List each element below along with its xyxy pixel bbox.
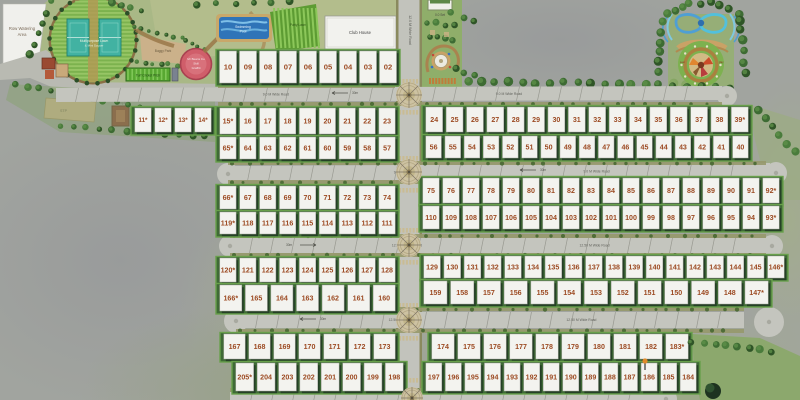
svg-text:Multipurpose Lawn: Multipurpose Lawn [80,39,109,43]
svg-text:128: 128 [381,267,393,275]
svg-text:201: 201 [324,374,336,382]
svg-text:167: 167 [229,343,241,351]
svg-text:0.0 Set: 0.0 Set [435,13,445,17]
svg-text:Graffiti: Graffiti [192,66,201,70]
svg-text:139: 139 [628,264,640,272]
svg-text:87: 87 [667,187,675,195]
svg-text:119*: 119* [221,220,235,228]
svg-text:170: 170 [304,343,316,351]
svg-text:180: 180 [593,343,605,351]
svg-text:70: 70 [304,194,312,202]
svg-text:164: 164 [276,295,288,303]
svg-text:204: 204 [260,374,272,382]
svg-text:149: 149 [697,289,709,297]
svg-text:191: 191 [545,374,557,382]
svg-text:174: 174 [437,343,449,351]
svg-text:75: 75 [427,187,435,195]
svg-text:30m: 30m [320,317,327,321]
svg-text:62: 62 [284,145,292,153]
svg-text:186: 186 [643,374,655,382]
svg-text:126: 126 [341,267,353,275]
svg-text:68: 68 [264,194,272,202]
svg-text:189: 189 [584,374,596,382]
svg-text:184: 184 [682,374,694,382]
svg-text:118: 118 [242,220,253,228]
svg-text:98: 98 [667,214,675,222]
svg-text:102: 102 [585,214,597,222]
svg-text:30m: 30m [352,91,359,95]
svg-text:179: 179 [567,343,579,351]
svg-text:181: 181 [619,343,631,351]
svg-text:40: 40 [736,144,744,152]
svg-text:Pool: Pool [240,30,247,34]
svg-text:Mr Beans Co: Mr Beans Co [187,57,205,61]
svg-text:100: 100 [625,214,637,222]
svg-text:& Mini Soccer: & Mini Soccer [85,44,104,48]
svg-text:Swimming: Swimming [235,25,251,29]
svg-text:151: 151 [644,289,656,297]
svg-text:177: 177 [515,343,527,351]
svg-text:39*: 39* [734,116,745,124]
svg-text:101: 101 [605,214,617,222]
svg-text:97: 97 [687,214,695,222]
svg-text:28: 28 [512,116,520,124]
svg-text:113: 113 [342,220,353,228]
svg-text:120*: 120* [221,267,236,275]
svg-text:08: 08 [264,63,272,72]
svg-text:144: 144 [729,264,741,272]
svg-text:178: 178 [541,343,553,351]
svg-text:84: 84 [607,187,615,195]
svg-text:105: 105 [525,214,537,222]
svg-text:198: 198 [388,374,400,382]
svg-text:47: 47 [602,144,610,152]
svg-text:64: 64 [244,145,252,153]
svg-text:63: 63 [264,145,272,153]
svg-text:153: 153 [590,289,602,297]
svg-text:127: 127 [361,267,373,275]
svg-text:30m: 30m [540,168,547,172]
svg-text:141: 141 [669,264,681,272]
svg-text:129: 129 [426,264,438,272]
svg-text:165: 165 [250,295,262,303]
svg-text:107: 107 [485,214,497,222]
svg-text:203: 203 [281,374,293,382]
svg-text:53: 53 [487,144,495,152]
svg-text:156: 156 [510,289,522,297]
svg-text:07: 07 [284,63,292,72]
svg-text:58: 58 [363,145,371,153]
svg-text:27: 27 [491,116,499,124]
svg-text:136: 136 [568,264,580,272]
svg-text:60: 60 [323,145,331,153]
svg-text:205*: 205* [237,374,252,382]
svg-text:12.50 M Wide Road: 12.50 M Wide Road [566,318,596,322]
svg-text:Area: Area [18,32,28,37]
svg-text:146*: 146* [769,264,784,272]
svg-text:116: 116 [282,220,293,228]
svg-text:21: 21 [343,118,351,126]
svg-text:14*: 14* [198,117,208,124]
svg-text:Turf Cricket Pitch: Turf Cricket Pitch [136,74,161,78]
svg-text:140: 140 [649,264,661,272]
svg-text:175: 175 [463,343,475,351]
svg-text:78: 78 [487,187,495,195]
svg-text:23: 23 [383,118,391,126]
svg-text:04: 04 [344,63,353,72]
svg-text:18: 18 [284,118,292,126]
svg-text:82: 82 [567,187,575,195]
svg-text:194: 194 [487,374,499,382]
svg-text:162: 162 [327,295,339,303]
svg-text:114: 114 [322,220,333,228]
svg-text:44: 44 [660,144,668,152]
svg-text:06: 06 [304,63,312,72]
svg-text:Club House: Club House [349,30,372,35]
svg-text:89: 89 [707,187,715,195]
svg-text:Party Lawn: Party Lawn [290,23,306,27]
svg-text:73: 73 [363,194,371,202]
svg-text:202: 202 [303,374,315,382]
svg-text:161: 161 [353,295,365,303]
svg-text:176: 176 [489,343,501,351]
svg-text:131: 131 [467,264,479,272]
svg-text:152: 152 [617,289,629,297]
svg-text:115: 115 [302,220,313,228]
svg-text:168: 168 [254,343,266,351]
svg-text:46: 46 [621,144,629,152]
svg-text:169: 169 [279,343,291,351]
svg-text:76: 76 [447,187,455,195]
svg-text:05: 05 [324,63,333,72]
svg-text:111: 111 [382,220,393,228]
svg-text:34: 34 [634,116,642,124]
svg-text:112: 112 [361,220,372,228]
svg-text:77: 77 [467,187,475,195]
svg-text:Row Watering: Row Watering [9,26,36,31]
svg-text:187: 187 [624,374,636,382]
svg-text:188: 188 [604,374,616,382]
svg-text:86: 86 [647,187,655,195]
svg-text:88: 88 [687,187,695,195]
svg-text:72: 72 [343,194,351,202]
svg-text:15*: 15* [223,118,234,126]
svg-text:197: 197 [428,374,440,382]
svg-text:02: 02 [384,63,392,72]
svg-text:30m: 30m [286,243,293,247]
svg-text:79: 79 [507,187,515,195]
svg-text:57: 57 [383,145,391,153]
svg-text:143: 143 [709,264,721,272]
svg-text:195: 195 [467,374,479,382]
svg-text:121: 121 [242,267,254,275]
svg-text:Buggy Park: Buggy Park [155,49,172,53]
svg-text:157: 157 [483,289,495,297]
svg-text:166*: 166* [223,295,238,303]
svg-text:16: 16 [244,118,252,126]
svg-text:35: 35 [654,116,662,124]
svg-text:154: 154 [563,289,575,297]
svg-text:81: 81 [547,187,555,195]
svg-text:192: 192 [526,374,538,382]
svg-text:103: 103 [565,214,577,222]
svg-text:159: 159 [429,289,441,297]
svg-text:29: 29 [532,116,540,124]
svg-text:22: 22 [363,118,371,126]
svg-text:41: 41 [717,144,725,152]
svg-text:56: 56 [430,144,438,152]
svg-text:125: 125 [321,267,333,275]
svg-text:199: 199 [367,374,379,382]
svg-text:134: 134 [527,264,539,272]
svg-text:03: 03 [364,63,372,72]
svg-text:33: 33 [614,116,622,124]
svg-text:30: 30 [552,116,560,124]
svg-text:117: 117 [262,220,273,228]
svg-text:80: 80 [527,187,535,195]
svg-text:51: 51 [526,144,534,152]
svg-text:52: 52 [506,144,514,152]
svg-text:83: 83 [587,187,595,195]
svg-text:9.0 M Wide Road: 9.0 M Wide Road [496,92,522,96]
svg-text:158: 158 [456,289,468,297]
svg-text:42: 42 [698,144,706,152]
svg-text:9.0 M Wide Road: 9.0 M Wide Road [263,93,289,97]
svg-text:190: 190 [565,374,577,382]
svg-text:133: 133 [507,264,519,272]
svg-text:25: 25 [451,116,459,124]
svg-text:17: 17 [264,118,272,126]
svg-text:45: 45 [641,144,649,152]
svg-text:173: 173 [379,343,391,351]
svg-text:135: 135 [547,264,559,272]
svg-text:123: 123 [282,267,294,275]
svg-text:12*: 12* [158,117,168,124]
svg-text:110: 110 [425,214,436,222]
svg-text:37: 37 [695,116,703,124]
svg-text:138: 138 [608,264,620,272]
svg-text:38: 38 [715,116,723,124]
svg-text:96: 96 [707,214,715,222]
svg-text:13*: 13* [178,117,188,124]
svg-text:85: 85 [627,187,635,195]
svg-text:147*: 147* [749,289,764,297]
svg-text:196: 196 [447,374,459,382]
svg-text:seat: seat [680,61,685,64]
svg-text:193: 193 [506,374,518,382]
svg-text:11*: 11* [139,117,149,124]
svg-text:Skill: Skill [193,62,199,66]
svg-text:12.0 M Wide Road: 12.0 M Wide Road [408,15,412,45]
svg-text:12.50 M Wide Road: 12.50 M Wide Road [580,244,610,248]
svg-text:163: 163 [302,295,314,303]
svg-text:59: 59 [343,145,351,153]
svg-text:91: 91 [747,187,755,195]
svg-text:24: 24 [430,116,438,124]
svg-text:95: 95 [727,214,735,222]
svg-text:124: 124 [302,267,314,275]
svg-text:09: 09 [244,63,252,72]
svg-text:182: 182 [645,343,657,351]
svg-text:99: 99 [647,214,655,222]
svg-text:185: 185 [663,374,675,382]
svg-text:50: 50 [545,144,553,152]
svg-text:54: 54 [468,144,476,152]
svg-text:66*: 66* [223,194,234,202]
svg-text:36: 36 [675,116,683,124]
svg-text:9.0 M Wide Road: 9.0 M Wide Road [583,170,609,174]
svg-text:65*: 65* [223,145,234,153]
svg-text:26: 26 [471,116,479,124]
svg-text:132: 132 [487,264,499,272]
svg-text:20: 20 [323,118,331,126]
svg-text:10: 10 [224,63,232,72]
svg-text:109: 109 [445,214,457,222]
svg-text:137: 137 [588,264,600,272]
svg-text:92*: 92* [766,187,777,195]
svg-text:32: 32 [593,116,601,124]
svg-text:71: 71 [323,194,331,202]
svg-text:145: 145 [750,264,762,272]
svg-text:74: 74 [383,194,391,202]
svg-text:108: 108 [465,214,477,222]
svg-text:160: 160 [378,295,390,303]
svg-text:130: 130 [446,264,458,272]
svg-text:19: 19 [304,118,312,126]
svg-text:183*: 183* [670,343,685,351]
svg-text:69: 69 [284,194,292,202]
svg-text:148: 148 [724,289,736,297]
svg-text:55: 55 [449,144,457,152]
svg-text:122: 122 [262,267,274,275]
svg-text:43: 43 [679,144,687,152]
svg-text:142: 142 [689,264,701,272]
svg-text:171: 171 [329,343,341,351]
svg-text:90: 90 [727,187,735,195]
svg-text:61: 61 [304,145,312,153]
svg-text:49: 49 [564,144,572,152]
svg-text:93*: 93* [766,214,777,222]
svg-text:150: 150 [670,289,682,297]
svg-text:94: 94 [747,214,755,222]
svg-text:48: 48 [583,144,591,152]
svg-text:172: 172 [354,343,366,351]
svg-text:155: 155 [537,289,549,297]
svg-text:200: 200 [346,374,358,382]
svg-text:106: 106 [505,214,517,222]
svg-text:31: 31 [573,116,581,124]
svg-text:67: 67 [244,194,252,202]
svg-text:104: 104 [545,214,557,222]
